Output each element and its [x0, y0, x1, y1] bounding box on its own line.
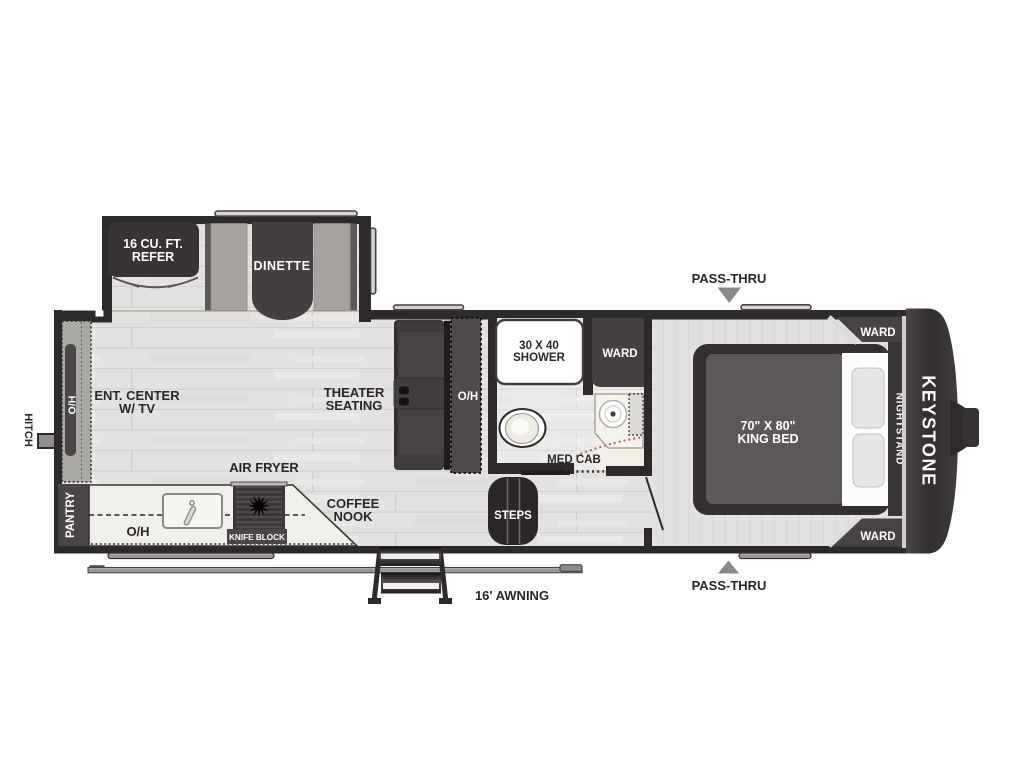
svg-text:KING BED: KING BED — [737, 432, 798, 446]
svg-text:DINETTE: DINETTE — [254, 259, 311, 273]
svg-text:SHOWER: SHOWER — [513, 352, 565, 364]
svg-text:NOOK: NOOK — [334, 509, 374, 524]
svg-text:PASS-THRU: PASS-THRU — [692, 271, 767, 286]
svg-text:16 CU. FT.: 16 CU. FT. — [123, 237, 183, 251]
svg-text:KNIFE BLOCK: KNIFE BLOCK — [229, 533, 285, 542]
svg-text:O/H: O/H — [126, 524, 149, 539]
svg-text:HITCH: HITCH — [22, 413, 34, 447]
svg-text:O/H: O/H — [67, 396, 79, 415]
svg-text:WARD: WARD — [860, 327, 895, 339]
svg-text:AIR FRYER: AIR FRYER — [229, 460, 299, 475]
svg-text:WARD: WARD — [602, 348, 637, 360]
svg-text:30 X 40: 30 X 40 — [519, 340, 559, 352]
svg-text:16' AWNING: 16' AWNING — [475, 588, 549, 603]
svg-text:W/ TV: W/ TV — [119, 401, 155, 416]
svg-text:STEPS: STEPS — [494, 510, 532, 522]
svg-text:70" X 80": 70" X 80" — [741, 419, 796, 433]
svg-text:SEATING: SEATING — [326, 398, 383, 413]
svg-text:O/H: O/H — [458, 391, 478, 403]
svg-text:PANTRY: PANTRY — [65, 492, 77, 538]
svg-text:REFER: REFER — [132, 250, 174, 264]
svg-text:PASS-THRU: PASS-THRU — [692, 578, 767, 593]
svg-text:MED CAB: MED CAB — [547, 454, 601, 466]
svg-text:KEYSTONE: KEYSTONE — [919, 375, 939, 487]
svg-text:WARD: WARD — [860, 531, 895, 543]
